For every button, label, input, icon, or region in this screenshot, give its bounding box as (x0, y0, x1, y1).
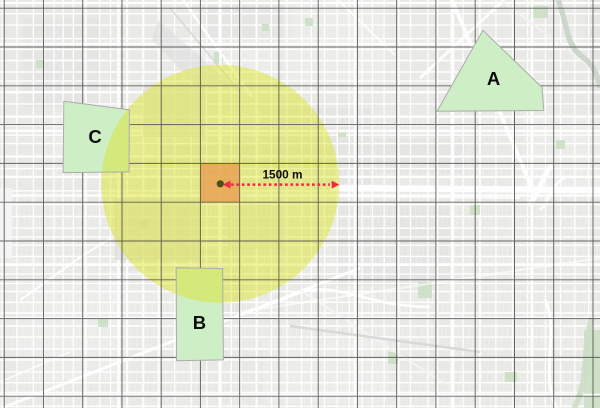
svg-text:B: B (193, 312, 206, 333)
svg-text:1500 m: 1500 m (262, 168, 302, 182)
svg-text:C: C (88, 126, 101, 147)
svg-text:A: A (487, 68, 500, 89)
